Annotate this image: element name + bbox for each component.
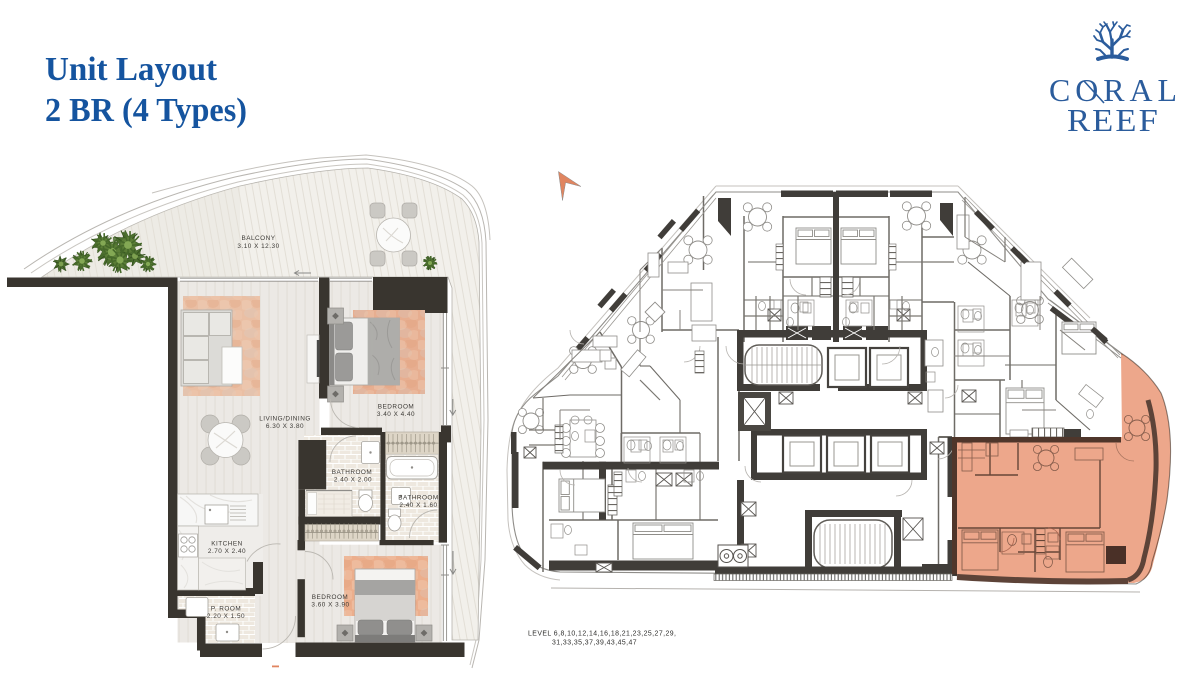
svg-text:3.10 X 12.30: 3.10 X 12.30 — [237, 243, 279, 250]
svg-text:2.40 X 1.60: 2.40 X 1.60 — [399, 502, 437, 509]
svg-text:Unit Layout: Unit Layout — [45, 51, 218, 88]
svg-text:BATHROOM: BATHROOM — [332, 469, 372, 476]
svg-text:2.40 X 2.00: 2.40 X 2.00 — [334, 477, 372, 484]
svg-text:P. ROOM: P. ROOM — [211, 606, 241, 613]
svg-text:3.60 X 3.90: 3.60 X 3.90 — [311, 602, 349, 609]
svg-text:BEDROOM: BEDROOM — [378, 404, 415, 411]
svg-text:BATHROOM: BATHROOM — [398, 495, 438, 502]
svg-text:6.30 X 3.80: 6.30 X 3.80 — [266, 423, 304, 430]
svg-text:BALCONY: BALCONY — [241, 235, 275, 242]
svg-text:2.20 X 1.50: 2.20 X 1.50 — [207, 613, 245, 620]
svg-text:2 BR (4 Types): 2 BR (4 Types) — [45, 92, 247, 129]
svg-text:LIVING/DINING: LIVING/DINING — [259, 416, 311, 423]
svg-text:REEF: REEF — [1067, 102, 1160, 138]
svg-text:LEVEL 6,8,10,12,14,16,18,21,23: LEVEL 6,8,10,12,14,16,18,21,23,25,27,29, — [528, 631, 676, 638]
svg-text:BEDROOM: BEDROOM — [312, 594, 349, 601]
svg-text:KITCHEN: KITCHEN — [211, 541, 243, 548]
svg-text:3.40 X 4.40: 3.40 X 4.40 — [377, 411, 415, 418]
svg-text:31,33,35,37,39,43,45,47: 31,33,35,37,39,43,45,47 — [552, 640, 637, 647]
svg-text:2.70 X 2.40: 2.70 X 2.40 — [208, 548, 246, 555]
